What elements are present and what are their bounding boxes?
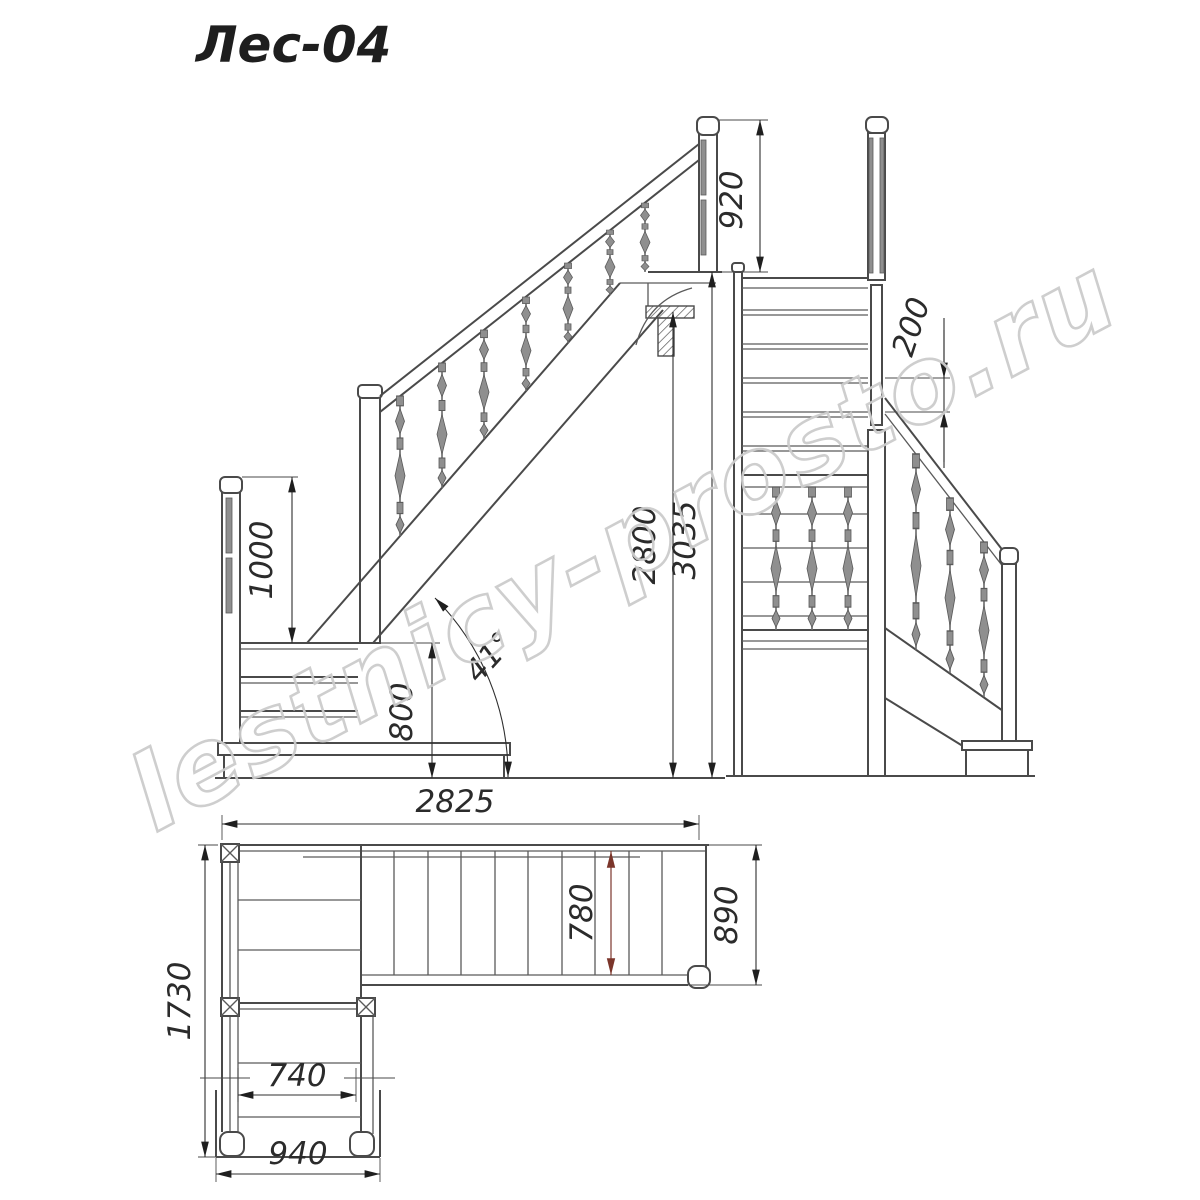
dim-flight-inner-width: 780 bbox=[564, 851, 611, 975]
dim-label-740: 740 bbox=[267, 1058, 326, 1094]
dim-label-2825: 2825 bbox=[416, 784, 495, 820]
handrail bbox=[380, 144, 699, 412]
dim-railing-height-landing: 1000 bbox=[242, 477, 298, 643]
dim-flight-outer-width: 890 bbox=[688, 845, 762, 985]
dim-railing-height-upper: 920 bbox=[714, 120, 768, 272]
floor-slab-section bbox=[620, 272, 722, 356]
dim-plan-depth: 1730 bbox=[162, 845, 218, 1157]
dim-label-890: 890 bbox=[709, 885, 745, 944]
dim-total-length: 2825 bbox=[222, 784, 699, 840]
dim-lower-inner-width: 740 bbox=[200, 1058, 395, 1102]
drawing-title: Лес-04 bbox=[194, 16, 391, 74]
drawing-sheet: 1000 800 2800 3035 920 41° bbox=[0, 0, 1200, 1200]
technical-drawing: 1000 800 2800 3035 920 41° bbox=[0, 0, 1200, 1200]
dim-label-940: 940 bbox=[268, 1136, 327, 1172]
plan-view: 2825 1730 890 780 740 bbox=[162, 784, 762, 1182]
plan-flight-treads bbox=[394, 851, 662, 975]
dim-label-920: 920 bbox=[714, 170, 750, 229]
front-floor-fascia bbox=[742, 278, 868, 288]
plan-outline bbox=[216, 845, 709, 1157]
dim-label-780: 780 bbox=[564, 883, 600, 942]
dim-label-1730: 1730 bbox=[162, 962, 198, 1041]
dim-label-1000: 1000 bbox=[244, 521, 280, 600]
plan-newel-posts bbox=[220, 844, 710, 1156]
